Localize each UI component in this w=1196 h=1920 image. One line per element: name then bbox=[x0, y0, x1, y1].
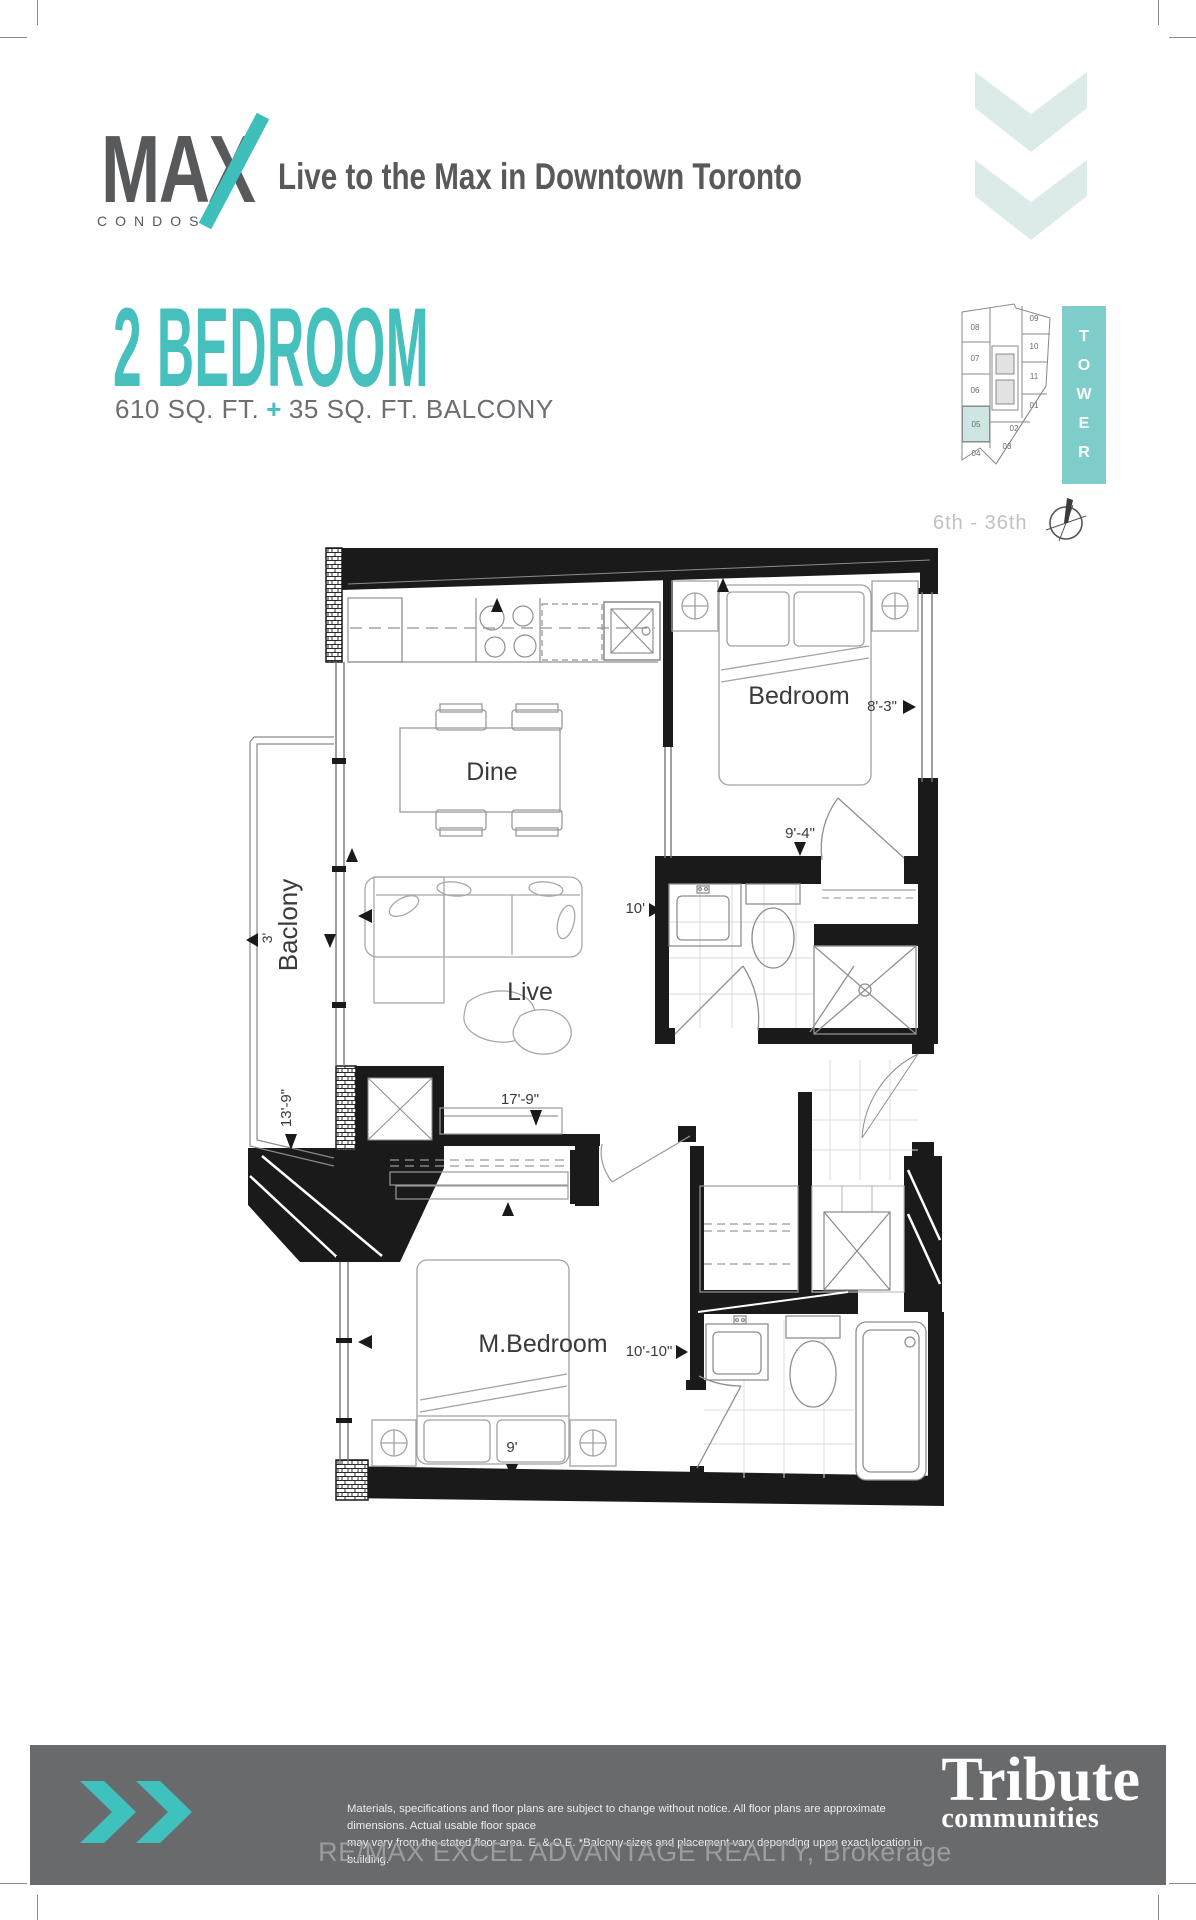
entry-foyer bbox=[812, 1054, 918, 1180]
dim-balcony-length: 13'-9" bbox=[278, 1089, 295, 1127]
room-label-balcony: Baclony bbox=[273, 879, 303, 972]
room-label-bedroom: Bedroom bbox=[748, 682, 849, 710]
dim-bedroom-depth: 9'-4" bbox=[785, 825, 815, 842]
master-bedroom-furniture bbox=[372, 1260, 616, 1466]
kitchen bbox=[348, 598, 660, 662]
ensuite-bath bbox=[697, 1316, 926, 1480]
room-label-master: M.Bedroom bbox=[478, 1330, 607, 1358]
footer-band: Materials, specifications and floor plan… bbox=[30, 1745, 1166, 1885]
bedroom-furniture bbox=[672, 581, 918, 898]
tribute-communities-logo: Tribute communities bbox=[941, 1751, 1140, 1831]
disclaimer-line-1: Materials, specifications and floor plan… bbox=[347, 1801, 932, 1835]
dim-living-width: 17'-9" bbox=[501, 1091, 539, 1108]
tribute-logo-top: Tribute bbox=[941, 1751, 1140, 1810]
dim-balcony-depth: 3' bbox=[259, 933, 275, 943]
living-furniture bbox=[365, 877, 582, 1054]
room-label-live: Live bbox=[507, 978, 553, 1006]
dim-bedroom-width: 8'-3" bbox=[867, 698, 897, 715]
brokerage-line: RE/MAX EXCEL ADVANTAGE REALTY, Brokerage bbox=[210, 1837, 1060, 1868]
floorplan: Bedroom Dine Live M.Bedroom Baclony 8'-3… bbox=[0, 0, 1196, 1920]
dim-master-depth: 9' bbox=[506, 1439, 517, 1456]
dim-bath-width: 10' bbox=[625, 900, 645, 917]
footer-chevrons-icon bbox=[80, 1781, 216, 1843]
flyer-page: MAX CONDOS Live to the Max in Downtown T… bbox=[0, 0, 1196, 1920]
room-label-dine: Dine bbox=[466, 758, 517, 786]
dim-master-width: 10'-10" bbox=[626, 1343, 673, 1360]
